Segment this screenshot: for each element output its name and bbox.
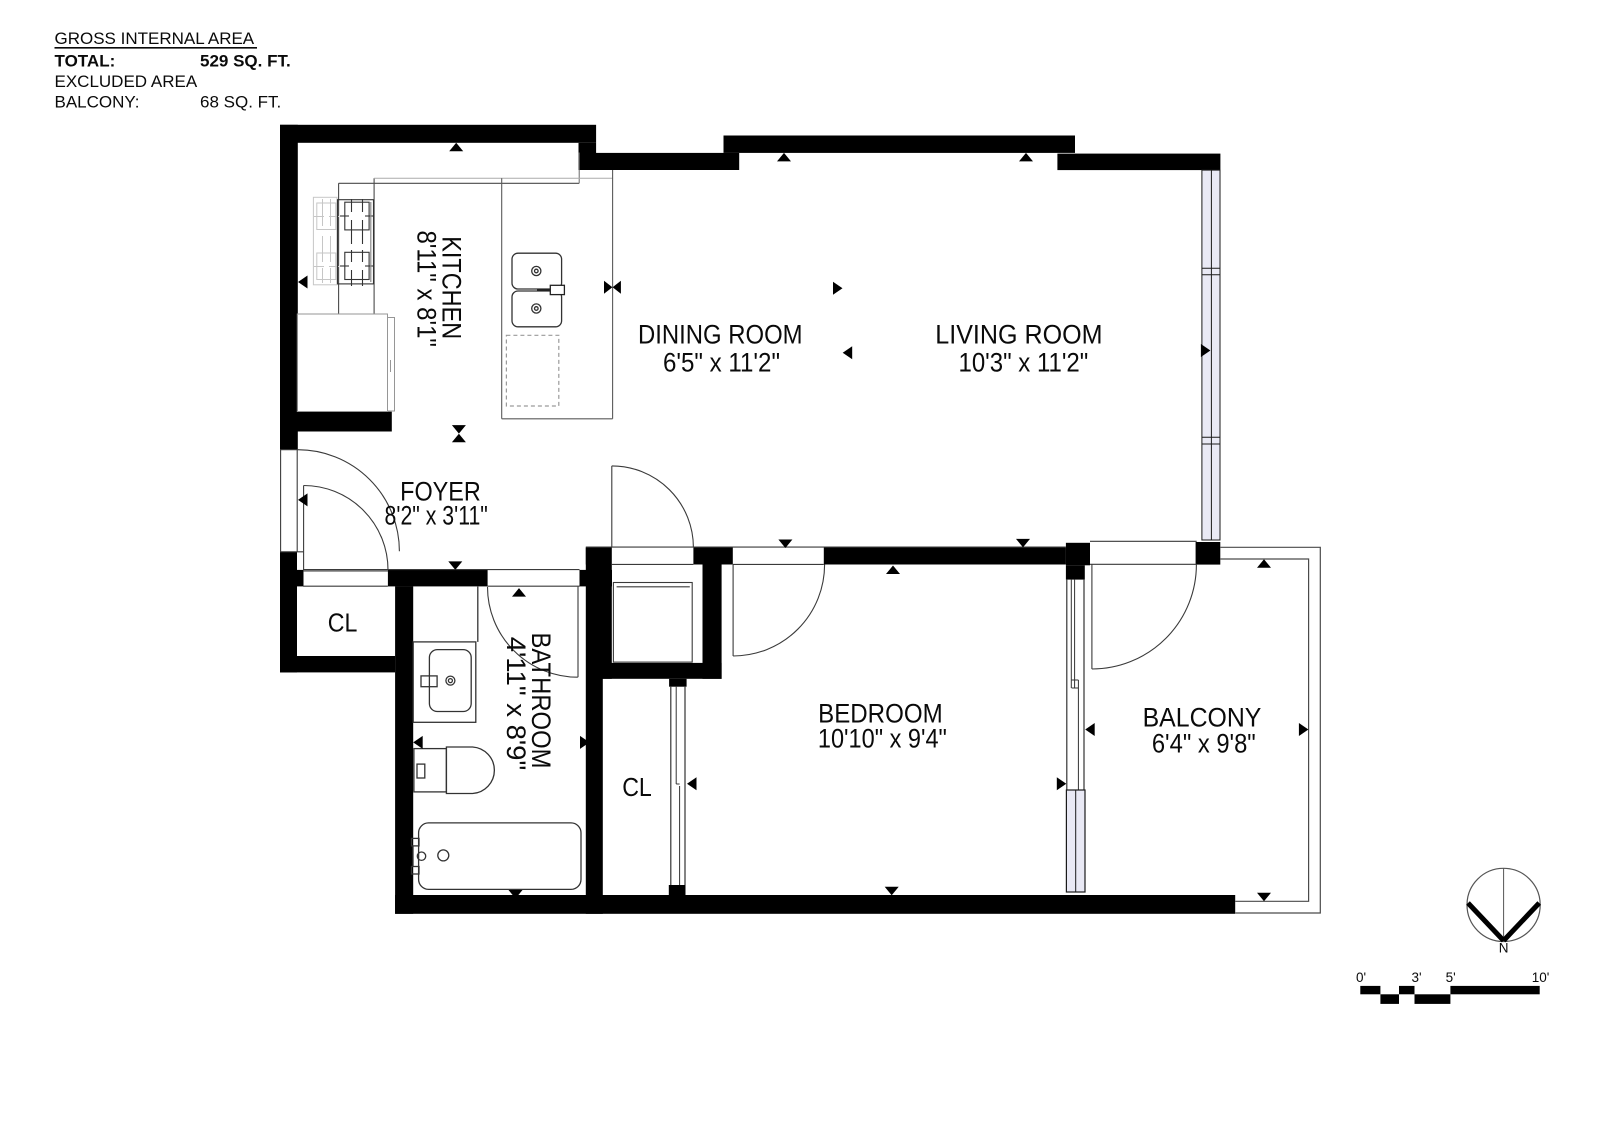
- svg-text:DINING ROOM: DINING ROOM: [638, 320, 803, 350]
- svg-text:5': 5': [1446, 970, 1456, 985]
- svg-text:GROSS INTERNAL AREA: GROSS INTERNAL AREA: [55, 29, 255, 48]
- svg-text:CL: CL: [622, 774, 652, 802]
- svg-text:8'11" x 8'1": 8'11" x 8'1": [412, 230, 442, 347]
- svg-text:BALCONY:: BALCONY:: [55, 93, 140, 112]
- svg-text:CL: CL: [328, 610, 358, 638]
- svg-text:0': 0': [1356, 970, 1366, 985]
- svg-text:EXCLUDED AREA: EXCLUDED AREA: [55, 72, 198, 91]
- svg-text:4'11" x 8'9": 4'11" x 8'9": [501, 637, 531, 771]
- svg-text:8'2" x 3'11": 8'2" x 3'11": [385, 500, 488, 530]
- svg-text:529 SQ. FT.: 529 SQ. FT.: [200, 52, 291, 71]
- svg-text:68 SQ. FT.: 68 SQ. FT.: [200, 93, 281, 112]
- svg-text:6'4" x 9'8": 6'4" x 9'8": [1152, 729, 1256, 759]
- svg-text:LIVING ROOM: LIVING ROOM: [935, 320, 1102, 350]
- svg-text:10'3" x 11'2": 10'3" x 11'2": [959, 348, 1089, 378]
- svg-text:10': 10': [1532, 970, 1550, 985]
- svg-text:N: N: [1499, 941, 1509, 956]
- svg-text:TOTAL:: TOTAL:: [55, 52, 116, 71]
- svg-text:6'5" x 11'2": 6'5" x 11'2": [663, 348, 780, 378]
- svg-text:10'10" x 9'4": 10'10" x 9'4": [818, 723, 947, 753]
- svg-text:3': 3': [1411, 970, 1421, 985]
